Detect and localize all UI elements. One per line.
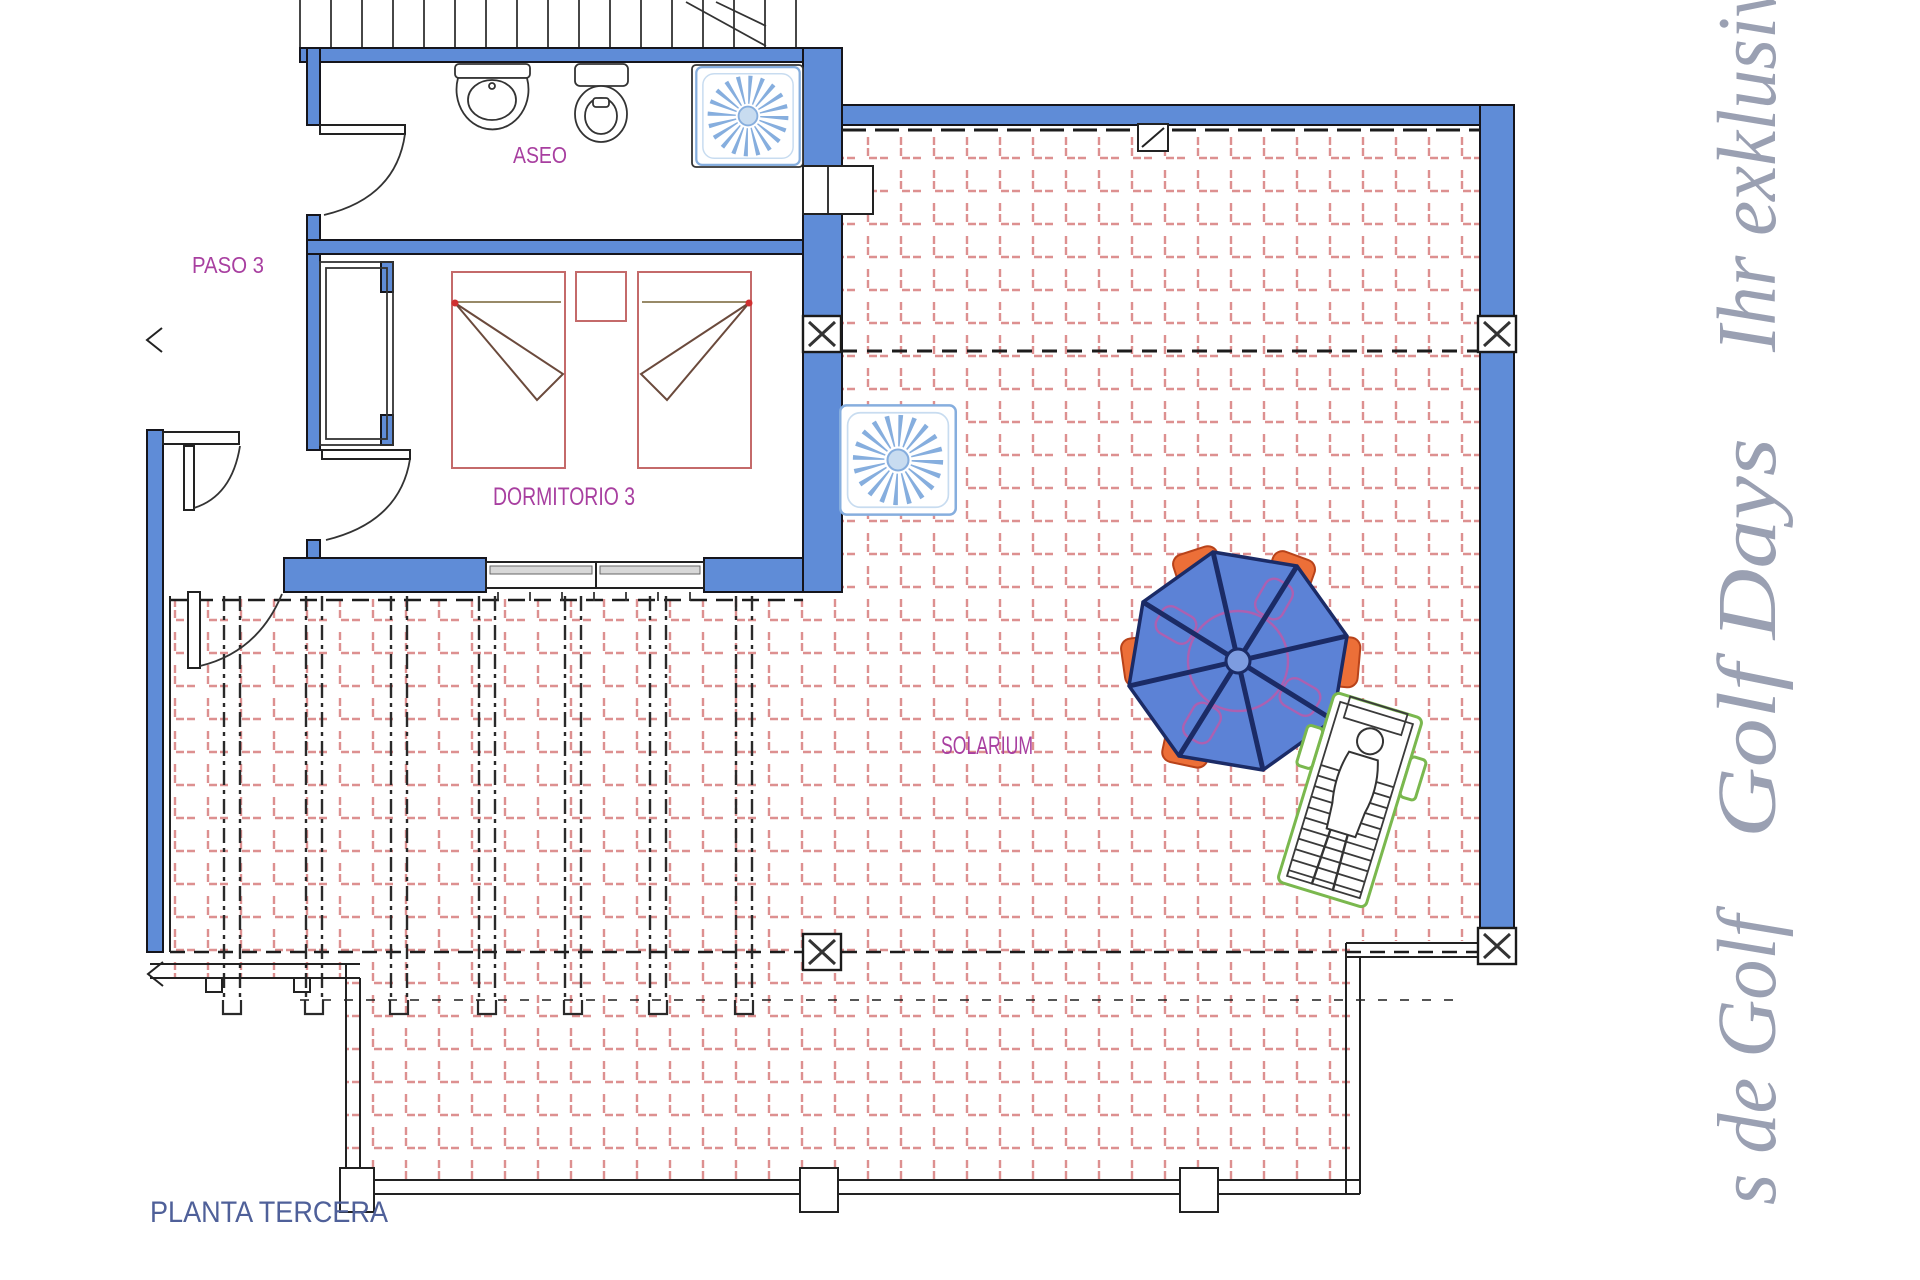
label-dormitorio: DORMITORIO 3	[493, 483, 635, 511]
terrace-sunburst-icon	[840, 405, 956, 514]
door-paso-leaf	[184, 446, 194, 510]
sink-icon	[455, 64, 530, 129]
side-brochure-text: Ihr exklusiv Golf Days s de Golf	[1701, 0, 1794, 1205]
door-aseo-leaf	[320, 125, 405, 134]
wardrobe-inner	[326, 268, 387, 439]
column-marker-sw	[803, 934, 841, 970]
stair-treads	[300, 0, 796, 48]
wall-stair-bottom	[300, 48, 842, 62]
section-arrow-icon-lower	[148, 962, 163, 986]
wall-terrace-right	[1480, 105, 1514, 943]
wall-left-exterior	[147, 430, 163, 952]
floor-title: PLANTA TERCERA	[150, 1196, 388, 1229]
side-text-middle: Golf Days	[1701, 438, 1794, 838]
door-terrace-leaf	[188, 592, 200, 668]
wall-terrace-top	[842, 105, 1514, 125]
label-paso: PASO 3	[192, 252, 264, 278]
railing-post-east	[1180, 1168, 1218, 1212]
column-marker-se	[1478, 928, 1516, 964]
nightstand	[576, 272, 626, 321]
window-dormitorio-south	[486, 562, 704, 601]
wall-aseo-dorm-divider	[307, 240, 842, 254]
door-dorm-swing	[326, 459, 410, 540]
side-text-top: Ihr exklusiv	[1701, 0, 1794, 353]
label-aseo: ASEO	[513, 142, 567, 168]
label-solarium: SOLARIUM	[941, 732, 1033, 760]
column-marker-ne	[1478, 316, 1516, 352]
wall-aseo-left-lower	[307, 215, 320, 240]
paso-low-wall	[163, 432, 239, 444]
door-aseo-swing	[324, 134, 405, 215]
roof-hatch-marker	[1138, 124, 1168, 151]
wall-dorm-bottom-west	[284, 558, 486, 592]
shower-tray	[692, 65, 803, 167]
railing-post-mid	[800, 1168, 838, 1212]
bed-single-right	[638, 272, 753, 468]
wall-dorm-bottom-east	[704, 558, 803, 592]
bed-single-left	[452, 272, 566, 468]
shower-sunburst-icon	[696, 67, 799, 165]
door-dorm-leaf	[322, 450, 410, 459]
stair-break-line	[686, 2, 766, 46]
window-aseo-east	[803, 166, 873, 214]
side-text-bottom: s de Golf	[1701, 905, 1794, 1205]
toilet-icon	[575, 64, 628, 142]
railing-posts-small	[206, 978, 310, 992]
door-paso-swing	[194, 446, 240, 508]
wall-aseo-left-upper	[307, 48, 320, 125]
staircase	[300, 0, 796, 48]
section-arrow-icon-upper	[147, 328, 162, 352]
wall-dorm-left-upper	[307, 254, 320, 450]
floor-plan-canvas: ASEO PASO 3 DORMITORIO 3 SOLARIUM PLANTA…	[0, 0, 1920, 1280]
aseo-fixtures	[455, 64, 803, 167]
column-marker-nw	[803, 316, 841, 352]
